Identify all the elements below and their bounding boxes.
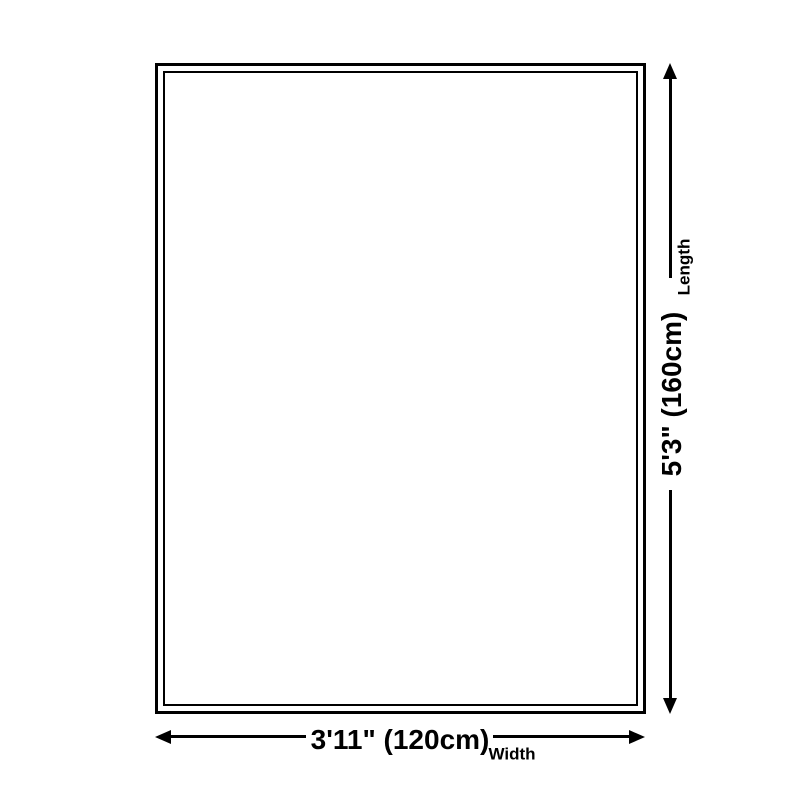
width-label: Width bbox=[488, 746, 535, 763]
width-arrow-right-icon bbox=[629, 730, 645, 744]
width-value: 3'11" (120cm) bbox=[311, 726, 490, 754]
rug-outline bbox=[155, 63, 646, 714]
length-label: Length bbox=[676, 239, 693, 296]
size-diagram: Length 5'3" (160cm) 3'11" (120cm) Width bbox=[0, 0, 800, 800]
length-arrow-line-top bbox=[669, 76, 672, 278]
rug-outline-inner-border bbox=[163, 71, 638, 706]
length-arrow-down-icon bbox=[663, 698, 677, 714]
length-value: 5'3" (160cm) bbox=[658, 312, 686, 477]
length-arrow-line-bottom bbox=[669, 490, 672, 702]
width-arrow-line-right bbox=[493, 735, 637, 738]
width-arrow-line-left bbox=[163, 735, 306, 738]
